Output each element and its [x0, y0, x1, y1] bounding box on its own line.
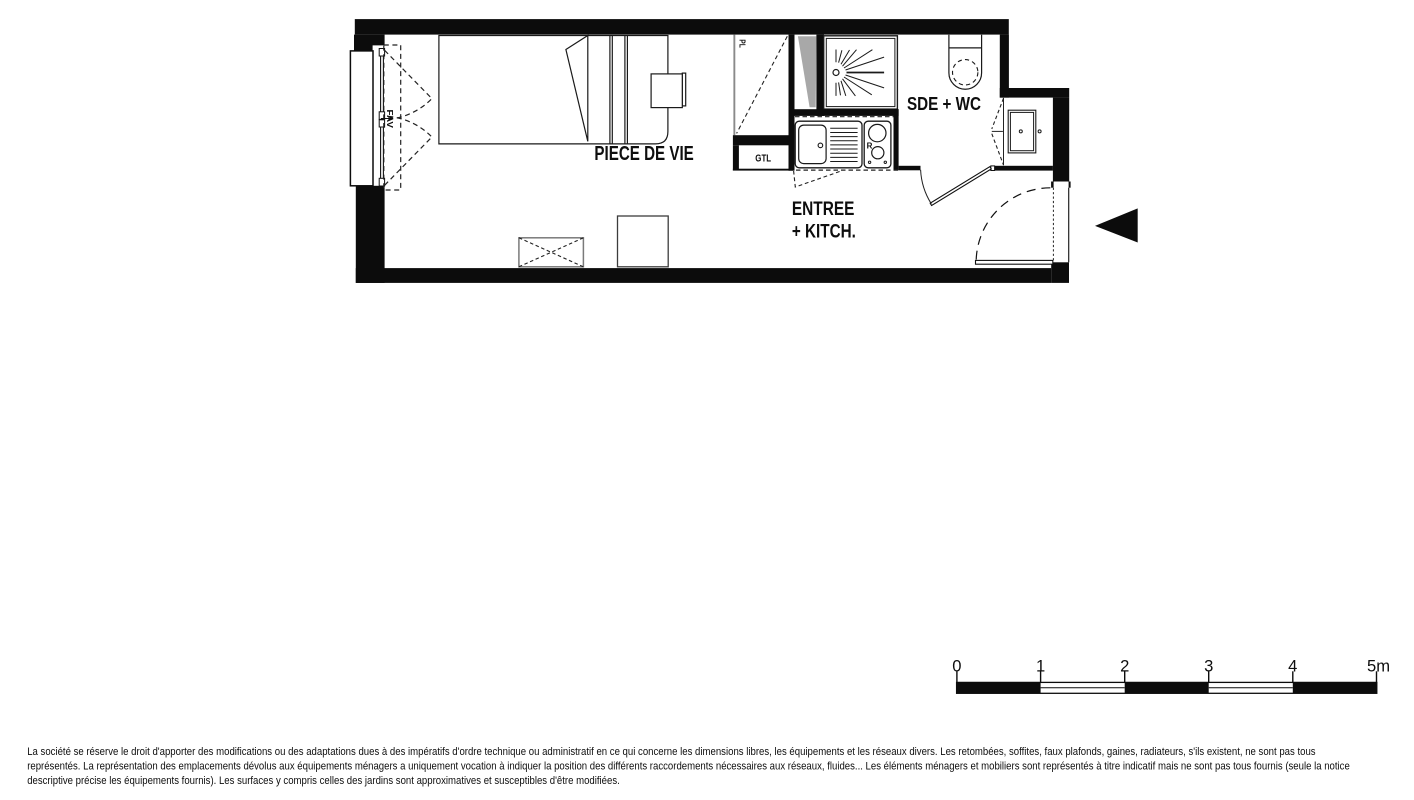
- svg-text:2: 2: [1120, 656, 1129, 675]
- svg-text:3: 3: [1204, 656, 1213, 675]
- svg-text:5m: 5m: [1367, 656, 1390, 675]
- svg-text:SDE + WC: SDE + WC: [907, 93, 981, 114]
- svg-text:PL: PL: [738, 39, 748, 48]
- svg-text:ENTREE: ENTREE: [792, 198, 855, 220]
- svg-text:représentés. La représentation: représentés. La représentation des empla…: [27, 760, 1350, 772]
- svg-text:1: 1: [1036, 656, 1045, 675]
- svg-text:FAV: FAV: [385, 110, 395, 129]
- svg-text:R: R: [867, 141, 873, 150]
- svg-text:descriptive précise les équipe: descriptive précise les équipements four…: [27, 775, 620, 787]
- svg-text:+ KITCH.: + KITCH.: [792, 220, 856, 242]
- svg-text:0: 0: [952, 656, 961, 675]
- svg-text:4: 4: [1288, 656, 1297, 675]
- svg-text:La société se réserve le droit: La société se réserve le droit d'apporte…: [27, 746, 1315, 758]
- svg-text:GTL: GTL: [755, 153, 771, 164]
- svg-text:PIECE DE VIE: PIECE DE VIE: [594, 143, 693, 165]
